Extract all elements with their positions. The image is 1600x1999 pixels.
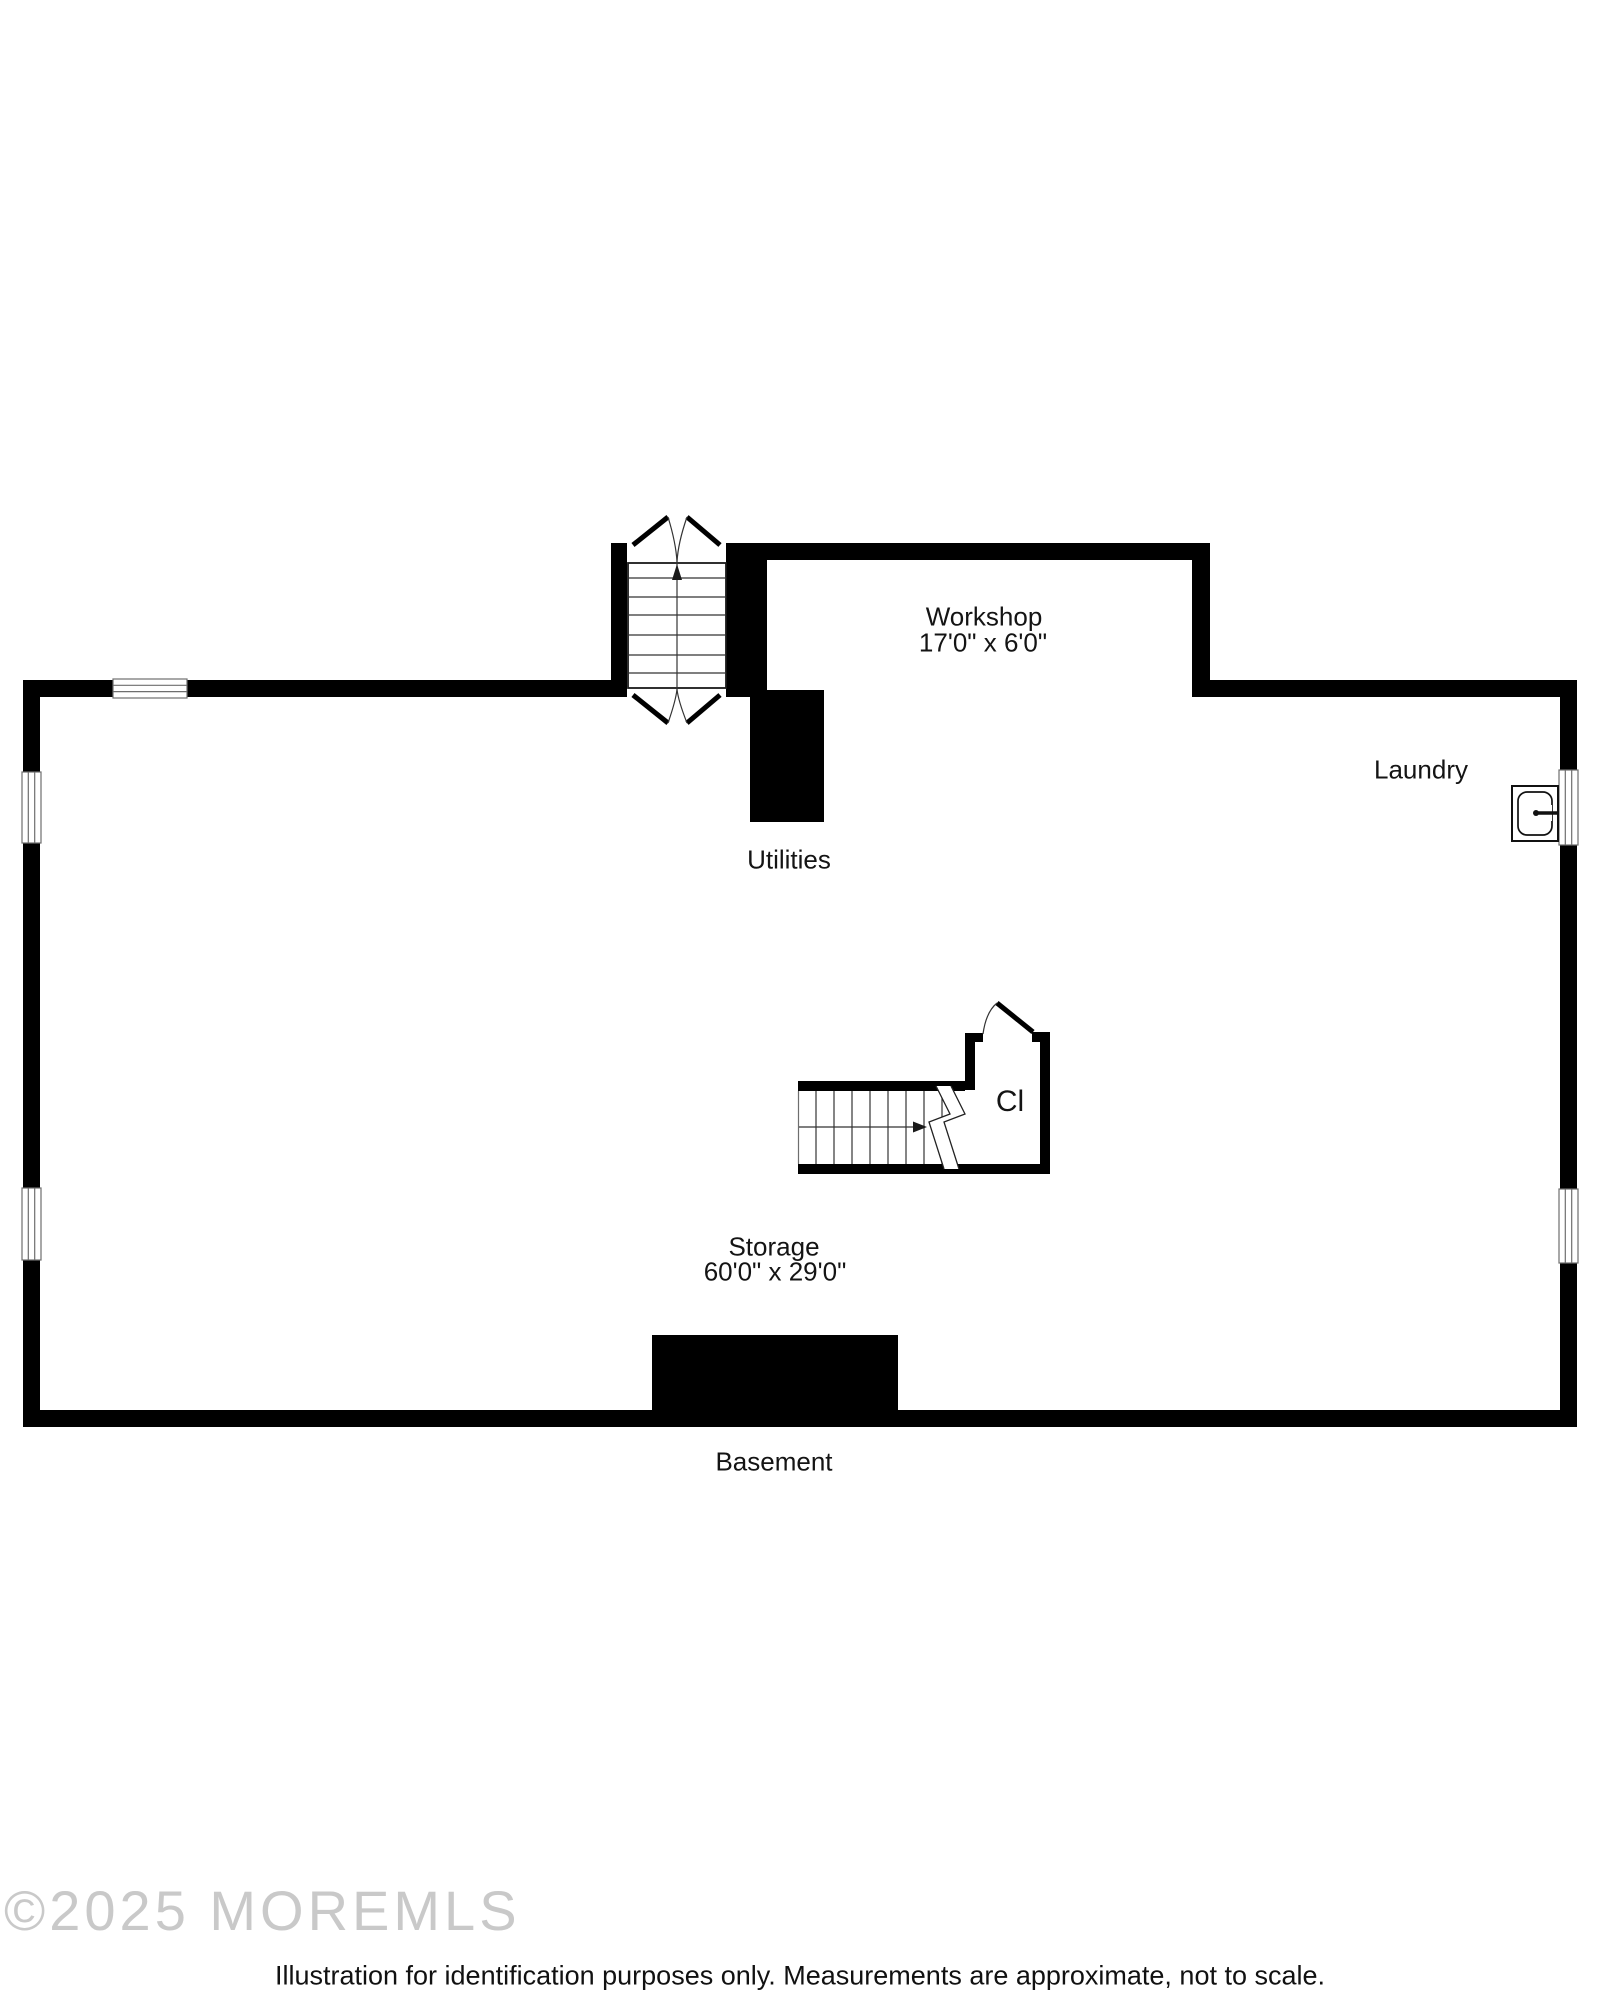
room-label-closet: Cl — [996, 1084, 1024, 1120]
utilities-chase-block — [750, 690, 824, 822]
window-top-wall — [113, 679, 187, 698]
window-right-upper — [1559, 770, 1578, 845]
floor-plan-page: Workshop 17'0" x 6'0" Laundry Utilities … — [0, 0, 1600, 1999]
wall-closet-top-stub-left — [965, 1033, 983, 1042]
double-door-swing-top — [633, 517, 720, 562]
closet-door-swing — [983, 1003, 1033, 1034]
wall-stair-corridor-bottom — [798, 1164, 1050, 1174]
room-dims-storage: 60'0" x 29'0" — [704, 1256, 847, 1287]
faucet-icon — [1533, 810, 1539, 816]
wall-stairwell-right — [726, 543, 767, 697]
wall-top-right — [1192, 680, 1577, 697]
room-label-utilities: Utilities — [747, 844, 831, 875]
staircase-lower — [799, 1086, 966, 1169]
wall-closet-right — [1040, 1032, 1050, 1174]
window-right-lower — [1559, 1189, 1578, 1263]
stair-direction-arrow-right — [913, 1122, 927, 1133]
staircase-upper — [628, 517, 726, 723]
floor-plan-drawing — [0, 0, 1600, 1999]
double-door-swing-bottom — [633, 689, 720, 723]
wall-stairwell-left — [611, 543, 627, 697]
floor-label-basement: Basement — [715, 1446, 832, 1477]
room-dims-workshop: 17'0" x 6'0" — [919, 627, 1047, 658]
exterior-walls — [23, 543, 1577, 1427]
window-left-upper — [22, 772, 41, 843]
foundation-block-bottom — [652, 1335, 898, 1427]
room-label-laundry: Laundry — [1374, 754, 1468, 785]
disclaimer-text: Illustration for identification purposes… — [275, 1961, 1325, 1992]
wall-workshop-right — [1192, 543, 1210, 697]
laundry-sink-fixture — [1512, 786, 1558, 841]
stair-break-symbol — [929, 1086, 965, 1169]
window-left-lower — [22, 1188, 41, 1260]
wall-top-left — [23, 680, 611, 697]
wall-workshop-top — [726, 543, 1210, 560]
mls-watermark: ©2025 MOREMLS — [4, 1878, 521, 1943]
